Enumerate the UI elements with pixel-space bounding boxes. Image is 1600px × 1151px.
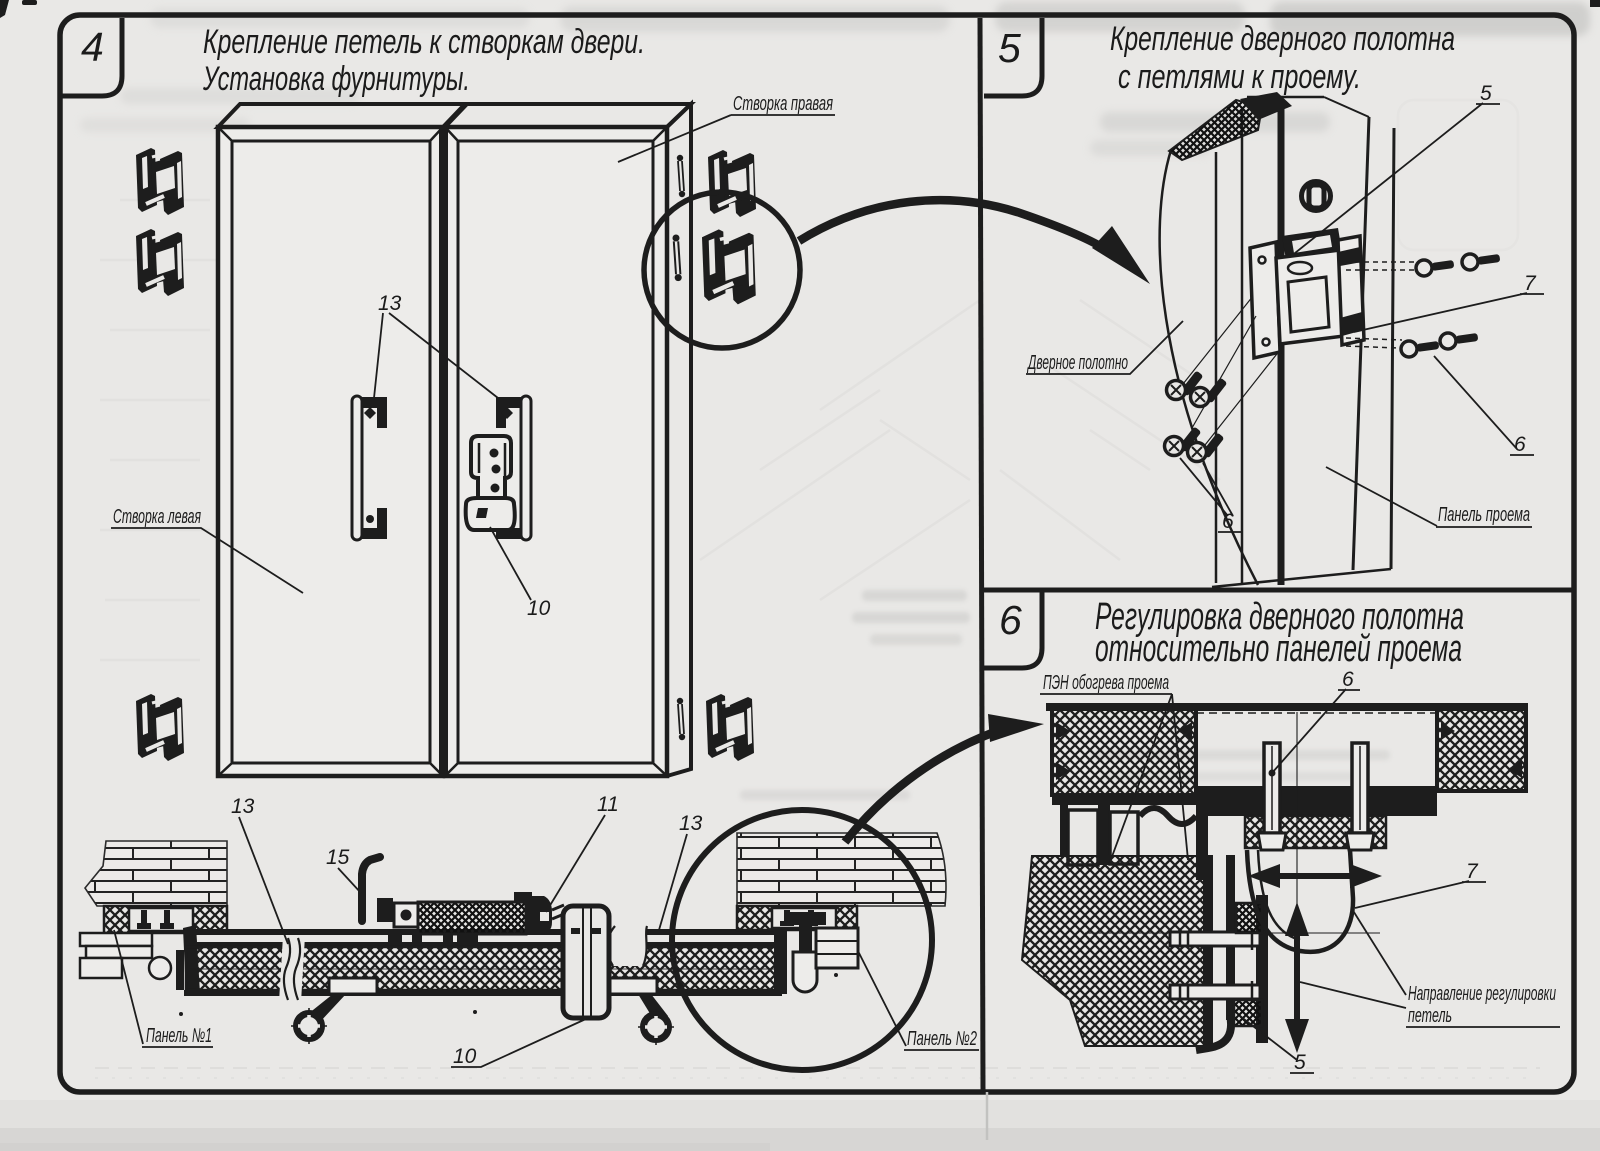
svg-text:ПЭН обогрева проема: ПЭН обогрева проема	[1043, 672, 1169, 694]
svg-text:Установка фурнитуры.: Установка фурнитуры.	[202, 60, 470, 98]
svg-text:5: 5	[1294, 1051, 1306, 1074]
svg-text:Направление регулировки: Направление регулировки	[1408, 983, 1556, 1005]
svg-text:Панель проема: Панель проема	[1438, 504, 1530, 526]
svg-text:13: 13	[679, 812, 703, 835]
svg-text:Створка правая: Створка правая	[733, 93, 833, 115]
svg-text:Створка левая: Створка левая	[113, 506, 201, 528]
svg-text:5: 5	[998, 25, 1021, 71]
svg-text:6: 6	[999, 597, 1022, 643]
svg-text:6: 6	[1342, 668, 1354, 691]
svg-text:13: 13	[231, 795, 255, 818]
svg-text:15: 15	[326, 846, 350, 869]
svg-text:Панель №1: Панель №1	[146, 1025, 212, 1047]
svg-text:10: 10	[453, 1045, 477, 1068]
svg-text:7: 7	[1466, 860, 1479, 883]
svg-text:Крепление дверного полотна: Крепление дверного полотна	[1110, 20, 1455, 58]
svg-text:13: 13	[378, 292, 402, 315]
svg-text:6: 6	[1514, 433, 1526, 456]
svg-text:петель: петель	[1408, 1005, 1452, 1027]
svg-text:с петлями к проему.: с петлями к проему.	[1118, 58, 1361, 96]
svg-text:7: 7	[1524, 272, 1537, 295]
svg-text:Дверное полотно: Дверное полотно	[1027, 352, 1128, 374]
svg-text:относительно панелей проема: относительно панелей проема	[1095, 628, 1462, 670]
svg-text:Панель №2: Панель №2	[907, 1028, 977, 1050]
svg-text:5: 5	[1480, 82, 1492, 105]
svg-text:10: 10	[527, 597, 551, 620]
svg-text:4: 4	[81, 24, 104, 70]
svg-text:Крепление петель к створкам дв: Крепление петель к створкам двери.	[203, 23, 645, 61]
svg-text:11: 11	[597, 793, 619, 816]
